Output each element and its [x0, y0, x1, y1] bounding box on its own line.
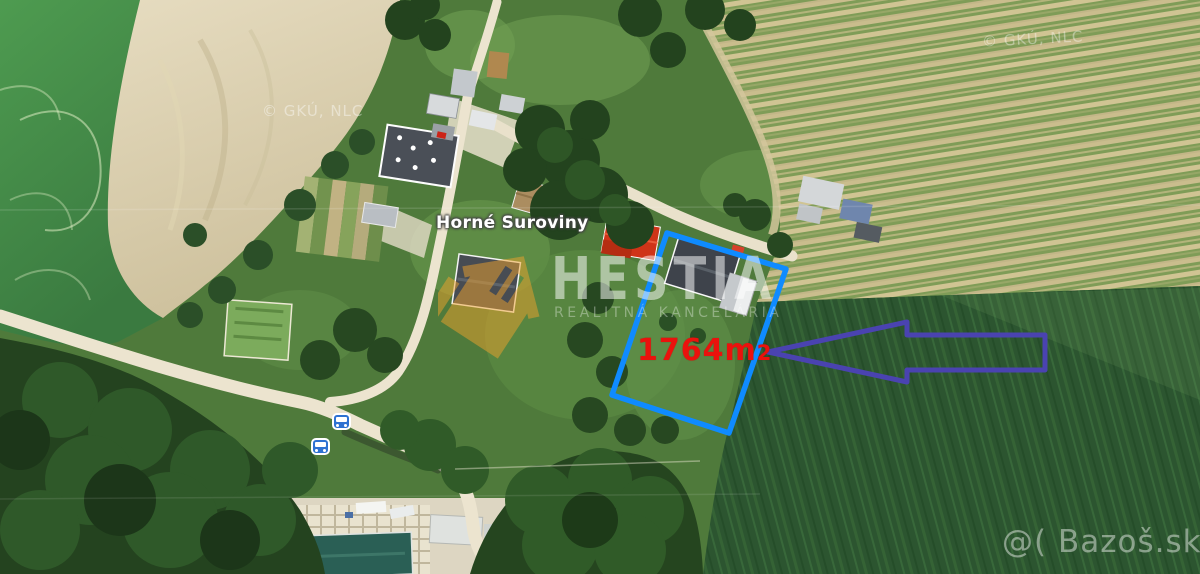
- area-label: 1764m2: [637, 336, 772, 366]
- bus-stop-icon: [311, 438, 330, 455]
- area-superscript: 2: [757, 341, 773, 365]
- area-value: 1764m: [637, 333, 757, 368]
- bus-stop-icon: [332, 413, 351, 430]
- site-watermark: @( Bazoš.sk: [1002, 524, 1200, 560]
- listing-image: HESTIA REALITNÁ KANCELÁRIA Horné Surovin…: [0, 0, 1200, 574]
- hestia-house-logo-icon: [438, 238, 558, 363]
- place-label: Horné Suroviny: [436, 213, 589, 233]
- agency-watermark-name: HESTIA: [551, 250, 776, 309]
- agency-watermark-subtitle: REALITNÁ KANCELÁRIA: [554, 305, 782, 321]
- imagery-credit-top-left: © GKÚ, NLC: [262, 102, 363, 120]
